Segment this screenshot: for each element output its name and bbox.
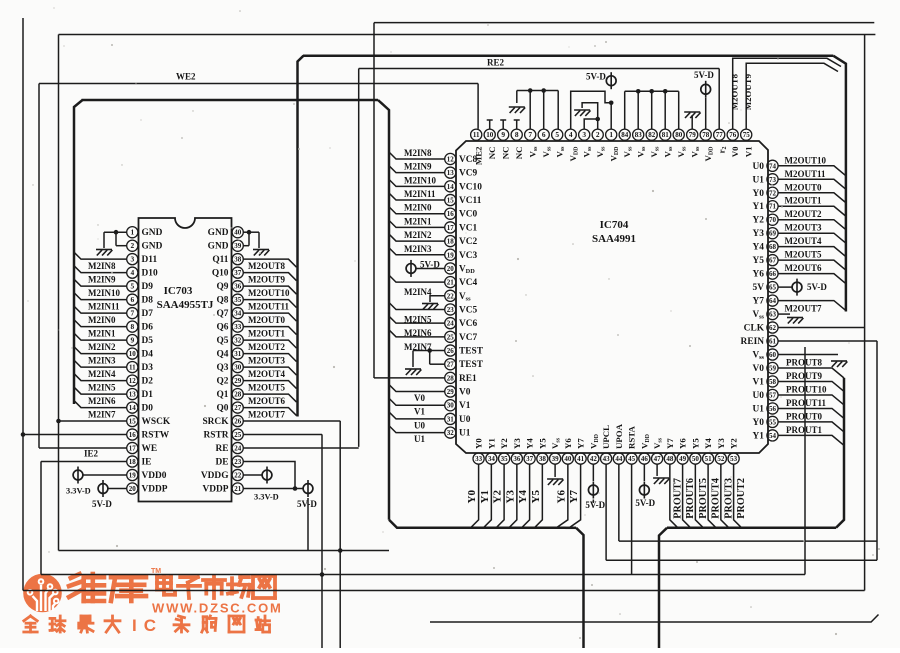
svg-text:M2OUT2: M2OUT2 xyxy=(785,209,822,219)
svg-text:D1: D1 xyxy=(142,390,154,400)
svg-text:60: 60 xyxy=(769,351,777,359)
svg-text:64: 64 xyxy=(769,297,777,305)
svg-text:U0: U0 xyxy=(459,415,471,425)
svg-text:M2IN9: M2IN9 xyxy=(88,275,116,285)
svg-text:VC2: VC2 xyxy=(459,237,478,247)
svg-text:D5: D5 xyxy=(142,336,154,346)
svg-text:PROUT9: PROUT9 xyxy=(786,371,823,381)
svg-text:D9: D9 xyxy=(142,282,154,292)
svg-text:34: 34 xyxy=(488,455,496,463)
svg-text:46: 46 xyxy=(641,455,649,463)
svg-text:UPOA: UPOA xyxy=(614,423,624,449)
svg-text:16: 16 xyxy=(129,431,137,439)
svg-text:38: 38 xyxy=(539,455,547,463)
svg-text:5V-D: 5V-D xyxy=(807,282,827,292)
svg-text:23: 23 xyxy=(447,306,455,314)
svg-text:M2OUT6: M2OUT6 xyxy=(248,396,285,406)
svg-text:5V-D: 5V-D xyxy=(297,499,317,509)
svg-text:12: 12 xyxy=(129,377,137,385)
svg-text:42: 42 xyxy=(590,455,598,463)
svg-text:V0: V0 xyxy=(730,146,740,157)
svg-text:V1: V1 xyxy=(753,377,765,387)
svg-text:40: 40 xyxy=(234,229,242,237)
svg-text:M2IN0: M2IN0 xyxy=(88,315,116,325)
svg-text:Y3: Y3 xyxy=(512,438,522,449)
svg-text:2: 2 xyxy=(596,130,600,139)
svg-text:26: 26 xyxy=(447,347,455,355)
svg-text:23: 23 xyxy=(234,458,242,466)
svg-text:Q7: Q7 xyxy=(217,309,229,319)
svg-text:26: 26 xyxy=(234,418,242,426)
svg-text:GND: GND xyxy=(208,242,229,252)
svg-text:33: 33 xyxy=(234,323,242,331)
svg-text:U1: U1 xyxy=(753,404,765,414)
svg-text:39: 39 xyxy=(552,455,560,463)
svg-text:IC: IC xyxy=(132,616,163,635)
svg-text:51: 51 xyxy=(705,455,713,463)
svg-text:IC704: IC704 xyxy=(600,219,629,231)
svg-text:34: 34 xyxy=(234,310,242,318)
svg-text:PROUT10: PROUT10 xyxy=(786,384,827,394)
svg-text:72: 72 xyxy=(769,189,777,197)
svg-text:67: 67 xyxy=(769,257,777,265)
svg-text:M2IN2: M2IN2 xyxy=(404,230,432,240)
svg-text:M2IN4: M2IN4 xyxy=(404,287,432,297)
svg-text:29: 29 xyxy=(447,388,455,396)
svg-text:33: 33 xyxy=(475,455,483,463)
svg-text:43: 43 xyxy=(603,455,611,463)
svg-text:8: 8 xyxy=(130,322,134,331)
svg-text:D6: D6 xyxy=(142,323,154,333)
svg-text:20: 20 xyxy=(447,265,455,273)
svg-text:CLK: CLK xyxy=(744,324,765,334)
svg-text:Y1: Y1 xyxy=(753,431,765,441)
svg-text:Y5: Y5 xyxy=(753,256,765,266)
svg-text:1: 1 xyxy=(609,130,613,139)
svg-text:Q0: Q0 xyxy=(217,404,229,414)
svg-text:RE1: RE1 xyxy=(459,374,477,384)
svg-text:M2IN11: M2IN11 xyxy=(404,189,436,199)
svg-text:VC6: VC6 xyxy=(459,319,478,329)
svg-text:28: 28 xyxy=(447,374,455,382)
svg-text:M2OUT1: M2OUT1 xyxy=(248,329,285,339)
svg-text:Y1: Y1 xyxy=(753,202,765,212)
svg-text:V1: V1 xyxy=(414,407,425,417)
svg-text:5V-D: 5V-D xyxy=(635,498,655,508)
svg-text:M2IN1: M2IN1 xyxy=(88,329,116,339)
svg-text:Y1: Y1 xyxy=(486,438,496,449)
svg-text:TEST: TEST xyxy=(459,360,484,370)
svg-text:37: 37 xyxy=(234,269,242,277)
svg-text:69: 69 xyxy=(769,230,777,238)
svg-text:VDD0: VDD0 xyxy=(142,471,167,481)
svg-text:U1: U1 xyxy=(753,175,765,185)
svg-text:39: 39 xyxy=(234,242,242,250)
svg-text:IE2: IE2 xyxy=(84,449,99,459)
svg-text:Y2: Y2 xyxy=(753,216,765,226)
svg-text:3: 3 xyxy=(130,255,134,264)
svg-text:GND: GND xyxy=(142,242,163,252)
svg-text:32: 32 xyxy=(234,337,242,345)
svg-text:M2OUT10: M2OUT10 xyxy=(248,288,290,298)
svg-text:10: 10 xyxy=(486,131,494,139)
svg-text:U0: U0 xyxy=(753,391,765,401)
svg-text:U1: U1 xyxy=(414,434,425,444)
svg-text:57: 57 xyxy=(769,391,777,399)
svg-text:40: 40 xyxy=(564,455,572,463)
svg-text:M2OUT0: M2OUT0 xyxy=(248,315,285,325)
svg-text:M2OUT5: M2OUT5 xyxy=(248,383,285,393)
svg-text:VC11: VC11 xyxy=(459,196,482,206)
svg-text:41: 41 xyxy=(577,455,585,463)
svg-text:32: 32 xyxy=(447,429,455,437)
svg-text:D7: D7 xyxy=(142,309,154,319)
svg-text:Y7: Y7 xyxy=(753,297,765,307)
svg-text:PROUT1: PROUT1 xyxy=(786,425,823,435)
svg-text:M2OUT8: M2OUT8 xyxy=(730,73,740,110)
svg-text:VC4: VC4 xyxy=(459,278,478,288)
svg-text:30: 30 xyxy=(447,402,455,410)
svg-text:Y3: Y3 xyxy=(504,490,516,504)
svg-text:PROUT11: PROUT11 xyxy=(786,398,827,408)
svg-text:Y4: Y4 xyxy=(525,438,535,449)
svg-text:56: 56 xyxy=(769,405,777,413)
svg-text:PROUT8: PROUT8 xyxy=(786,358,823,368)
svg-text:Y5: Y5 xyxy=(690,438,700,449)
svg-text:Y0: Y0 xyxy=(753,418,765,428)
svg-text:81: 81 xyxy=(662,131,670,139)
svg-text:WE2: WE2 xyxy=(176,72,196,82)
svg-text:Y7: Y7 xyxy=(665,438,675,449)
svg-text:WSCK: WSCK xyxy=(142,417,171,427)
svg-text:VDDP: VDDP xyxy=(202,485,228,495)
svg-text:U0: U0 xyxy=(753,162,765,172)
svg-text:GND: GND xyxy=(142,228,163,238)
svg-text:M2IN9: M2IN9 xyxy=(404,162,432,172)
svg-text:55: 55 xyxy=(769,418,777,426)
svg-text:D2: D2 xyxy=(142,377,154,387)
svg-text:5: 5 xyxy=(555,130,559,139)
svg-text:7: 7 xyxy=(130,309,134,318)
svg-text:Y0: Y0 xyxy=(753,189,765,199)
svg-text:M2IN8: M2IN8 xyxy=(404,148,432,158)
svg-text:RE: RE xyxy=(215,444,228,454)
svg-text:TEST: TEST xyxy=(459,347,484,357)
svg-text:D3: D3 xyxy=(142,363,154,373)
svg-text:Y6: Y6 xyxy=(753,270,765,280)
svg-text:12: 12 xyxy=(447,156,455,164)
svg-text:22: 22 xyxy=(234,472,242,480)
svg-text:78: 78 xyxy=(702,131,710,139)
svg-text:M2OUT5: M2OUT5 xyxy=(785,250,822,260)
svg-text:M2OUT3: M2OUT3 xyxy=(785,223,822,233)
svg-text:Y0: Y0 xyxy=(466,490,478,504)
svg-text:1: 1 xyxy=(130,228,134,237)
svg-text:PROUT4: PROUT4 xyxy=(711,478,722,519)
svg-text:DE: DE xyxy=(215,458,228,468)
svg-text:5V: 5V xyxy=(753,283,765,293)
svg-text:59: 59 xyxy=(769,365,777,373)
svg-text:M2OUT10: M2OUT10 xyxy=(785,155,827,165)
svg-text:VDDG: VDDG xyxy=(201,471,229,481)
svg-text:VC10: VC10 xyxy=(459,182,482,192)
svg-text:5V-D: 5V-D xyxy=(92,499,112,509)
svg-text:D8: D8 xyxy=(142,296,154,306)
svg-text:29: 29 xyxy=(234,377,242,385)
svg-text:54: 54 xyxy=(769,432,777,440)
svg-text:65: 65 xyxy=(769,284,777,292)
svg-text:19: 19 xyxy=(129,472,137,480)
svg-text:WE: WE xyxy=(142,444,158,454)
svg-text:PROUT7: PROUT7 xyxy=(672,478,683,519)
svg-text:53: 53 xyxy=(730,455,738,463)
svg-text:IE: IE xyxy=(142,458,152,468)
svg-text:25: 25 xyxy=(447,333,455,341)
svg-text:VDDP: VDDP xyxy=(142,485,168,495)
svg-text:PROUT2: PROUT2 xyxy=(736,478,747,519)
svg-text:9: 9 xyxy=(501,130,505,139)
svg-text:Q6: Q6 xyxy=(217,323,229,333)
svg-text:48: 48 xyxy=(666,455,674,463)
svg-text:M2OUT6: M2OUT6 xyxy=(785,263,822,273)
svg-text:M2OUT4: M2OUT4 xyxy=(785,236,822,246)
svg-text:VC8: VC8 xyxy=(459,155,478,165)
svg-text:30: 30 xyxy=(234,364,242,372)
svg-text:4: 4 xyxy=(130,268,134,277)
svg-text:V1: V1 xyxy=(459,401,471,411)
svg-text:24: 24 xyxy=(234,445,242,453)
svg-text:Y6: Y6 xyxy=(555,490,567,504)
svg-text:Y0: Y0 xyxy=(474,438,484,449)
svg-text:U0: U0 xyxy=(414,420,425,430)
svg-text:Q10: Q10 xyxy=(212,269,229,279)
svg-text:PROUT0: PROUT0 xyxy=(786,411,823,421)
svg-text:Q5: Q5 xyxy=(217,336,229,346)
svg-text:45: 45 xyxy=(628,455,636,463)
svg-text:35: 35 xyxy=(234,296,242,304)
svg-text:83: 83 xyxy=(635,131,643,139)
svg-text:18: 18 xyxy=(129,458,137,466)
svg-text:14: 14 xyxy=(129,404,137,412)
svg-text:M2IN3: M2IN3 xyxy=(88,356,116,366)
svg-text:PROUT5: PROUT5 xyxy=(698,478,709,519)
svg-text:61: 61 xyxy=(769,338,777,346)
svg-text:6: 6 xyxy=(130,295,134,304)
svg-text:V0: V0 xyxy=(753,364,765,374)
svg-text:SRCK: SRCK xyxy=(202,417,229,427)
svg-text:7: 7 xyxy=(528,130,532,139)
svg-text:Y7: Y7 xyxy=(576,438,586,449)
svg-text:15: 15 xyxy=(129,418,137,426)
svg-text:38: 38 xyxy=(234,256,242,264)
svg-text:VC9: VC9 xyxy=(459,169,478,179)
svg-text:21: 21 xyxy=(447,279,455,287)
svg-text:Y2: Y2 xyxy=(492,490,504,504)
svg-text:Y5: Y5 xyxy=(537,438,547,449)
svg-text:M2IN0: M2IN0 xyxy=(404,203,432,213)
svg-text:14: 14 xyxy=(447,183,455,191)
svg-text:M2OUT9: M2OUT9 xyxy=(743,73,753,110)
svg-text:VC1: VC1 xyxy=(459,223,478,233)
svg-text:31: 31 xyxy=(234,350,242,358)
svg-text:SAA4991: SAA4991 xyxy=(592,233,636,245)
svg-text:79: 79 xyxy=(689,131,697,139)
svg-text:37: 37 xyxy=(526,455,534,463)
svg-text:M2OUT2: M2OUT2 xyxy=(248,342,285,352)
svg-text:D4: D4 xyxy=(142,350,154,360)
svg-text:73: 73 xyxy=(769,176,777,184)
svg-text:2: 2 xyxy=(130,241,134,250)
svg-text:35: 35 xyxy=(501,455,509,463)
svg-text:M2IN3: M2IN3 xyxy=(404,244,432,254)
svg-text:28: 28 xyxy=(234,391,242,399)
svg-text:22: 22 xyxy=(447,292,455,300)
svg-text:44: 44 xyxy=(615,455,623,463)
svg-text:Y1: Y1 xyxy=(479,490,491,503)
svg-text:VC3: VC3 xyxy=(459,251,478,261)
svg-text:50: 50 xyxy=(692,455,700,463)
svg-text:NC: NC xyxy=(501,147,511,160)
svg-text:M2OUT1: M2OUT1 xyxy=(785,196,822,206)
svg-text:M2OUT8: M2OUT8 xyxy=(248,261,285,271)
svg-text:70: 70 xyxy=(769,216,777,224)
svg-text:62: 62 xyxy=(769,324,777,332)
svg-text:11: 11 xyxy=(473,131,480,139)
svg-text:Y2: Y2 xyxy=(729,438,739,449)
svg-text:M2IN7: M2IN7 xyxy=(88,410,116,420)
svg-text:Q8: Q8 xyxy=(217,296,229,306)
svg-text:71: 71 xyxy=(769,203,777,211)
svg-text:M2IN8: M2IN8 xyxy=(88,261,116,271)
svg-text:UPCL: UPCL xyxy=(601,425,611,449)
svg-text:V0: V0 xyxy=(414,393,425,403)
svg-text:25: 25 xyxy=(234,431,242,439)
svg-text:6: 6 xyxy=(542,130,546,139)
svg-text:NC: NC xyxy=(514,147,524,160)
svg-text:REIN: REIN xyxy=(741,337,765,347)
svg-text:M2OUT0: M2OUT0 xyxy=(785,182,822,192)
svg-text:D10: D10 xyxy=(142,269,158,279)
svg-text:36: 36 xyxy=(234,283,242,291)
svg-text:9: 9 xyxy=(130,336,134,345)
svg-text:3.3V-D: 3.3V-D xyxy=(254,493,279,502)
svg-text:SAA4955TJ: SAA4955TJ xyxy=(157,299,214,311)
svg-text:Y4: Y4 xyxy=(703,438,713,449)
svg-text:M2IN2: M2IN2 xyxy=(88,342,116,352)
svg-text:IC703: IC703 xyxy=(164,285,193,297)
svg-text:5V-D: 5V-D xyxy=(694,70,714,80)
svg-text:19: 19 xyxy=(447,251,455,259)
svg-text:M2OUT4: M2OUT4 xyxy=(248,369,285,379)
svg-text:M2IN10: M2IN10 xyxy=(404,175,436,185)
svg-text:13: 13 xyxy=(129,391,137,399)
svg-text:Q2: Q2 xyxy=(217,377,229,387)
svg-text:NC: NC xyxy=(487,147,497,160)
svg-text:VC5: VC5 xyxy=(459,305,478,315)
svg-text:M2OUT11: M2OUT11 xyxy=(248,302,290,312)
svg-text:D0: D0 xyxy=(142,404,154,414)
svg-text:74: 74 xyxy=(769,162,777,170)
svg-text:27: 27 xyxy=(447,361,455,369)
svg-text:68: 68 xyxy=(769,243,777,251)
svg-text:47: 47 xyxy=(654,455,662,463)
svg-text:Y5: Y5 xyxy=(530,490,542,504)
svg-text:84: 84 xyxy=(621,131,629,139)
svg-text:M2OUT7: M2OUT7 xyxy=(248,410,285,420)
svg-text:RSTR: RSTR xyxy=(203,431,228,441)
svg-text:D11: D11 xyxy=(142,255,158,265)
svg-text:V1: V1 xyxy=(744,147,754,158)
svg-text:Y3: Y3 xyxy=(716,438,726,449)
svg-text:RE2: RE2 xyxy=(487,58,505,68)
svg-text:10: 10 xyxy=(129,350,137,358)
svg-text:5V-D: 5V-D xyxy=(420,260,440,270)
svg-text:M2OUT7: M2OUT7 xyxy=(785,304,822,314)
svg-text:13: 13 xyxy=(447,169,455,177)
svg-text:58: 58 xyxy=(769,378,777,386)
svg-text:Q3: Q3 xyxy=(217,363,229,373)
svg-text:M2IN6: M2IN6 xyxy=(88,396,116,406)
svg-text:PROUT6: PROUT6 xyxy=(685,478,696,519)
svg-text:M2IN1: M2IN1 xyxy=(404,216,432,226)
svg-text:Y4: Y4 xyxy=(517,490,529,504)
svg-text:M2IN5: M2IN5 xyxy=(88,383,116,393)
svg-text:82: 82 xyxy=(648,131,656,139)
svg-text:RSTW: RSTW xyxy=(142,431,170,441)
svg-text:4: 4 xyxy=(569,130,573,139)
svg-text:77: 77 xyxy=(716,131,724,139)
svg-text:17: 17 xyxy=(129,445,137,453)
svg-text:21: 21 xyxy=(234,485,242,493)
svg-text:66: 66 xyxy=(769,270,777,278)
svg-text:20: 20 xyxy=(129,485,137,493)
svg-text:80: 80 xyxy=(675,131,683,139)
svg-text:M2OUT11: M2OUT11 xyxy=(785,169,827,179)
svg-text:75: 75 xyxy=(743,131,751,139)
svg-text:GND: GND xyxy=(208,228,229,238)
svg-text:WWW.DZSC.COM: WWW.DZSC.COM xyxy=(152,601,283,616)
svg-text:63: 63 xyxy=(769,311,777,319)
svg-text:VC0: VC0 xyxy=(459,210,478,220)
svg-text:Q9: Q9 xyxy=(217,282,229,292)
svg-text:11: 11 xyxy=(129,364,136,372)
svg-text:17: 17 xyxy=(447,224,455,232)
svg-text:27: 27 xyxy=(234,404,242,412)
svg-text:Q1: Q1 xyxy=(217,390,229,400)
svg-text:Q4: Q4 xyxy=(217,350,229,360)
svg-text:24: 24 xyxy=(447,320,455,328)
svg-text:Y3: Y3 xyxy=(753,229,765,239)
svg-text:5: 5 xyxy=(130,282,134,291)
svg-text:Y6: Y6 xyxy=(563,438,573,449)
svg-text:52: 52 xyxy=(717,455,725,463)
svg-text:3: 3 xyxy=(582,130,586,139)
svg-text:M2IN4: M2IN4 xyxy=(88,369,116,379)
svg-text:Y6: Y6 xyxy=(678,438,688,449)
svg-text:15: 15 xyxy=(447,197,455,205)
svg-text:M2OUT3: M2OUT3 xyxy=(248,356,285,366)
svg-text:RSTA: RSTA xyxy=(627,426,637,449)
svg-text:PROUT3: PROUT3 xyxy=(723,478,734,519)
svg-text:U1: U1 xyxy=(459,429,471,439)
svg-text:M2IN11: M2IN11 xyxy=(88,302,120,312)
svg-text:16: 16 xyxy=(447,210,455,218)
svg-text:Y2: Y2 xyxy=(499,438,509,449)
svg-text:Y7: Y7 xyxy=(568,490,580,504)
svg-text:5V-D: 5V-D xyxy=(585,500,605,510)
svg-text:Q11: Q11 xyxy=(212,255,228,265)
svg-text:M2IN10: M2IN10 xyxy=(88,288,120,298)
